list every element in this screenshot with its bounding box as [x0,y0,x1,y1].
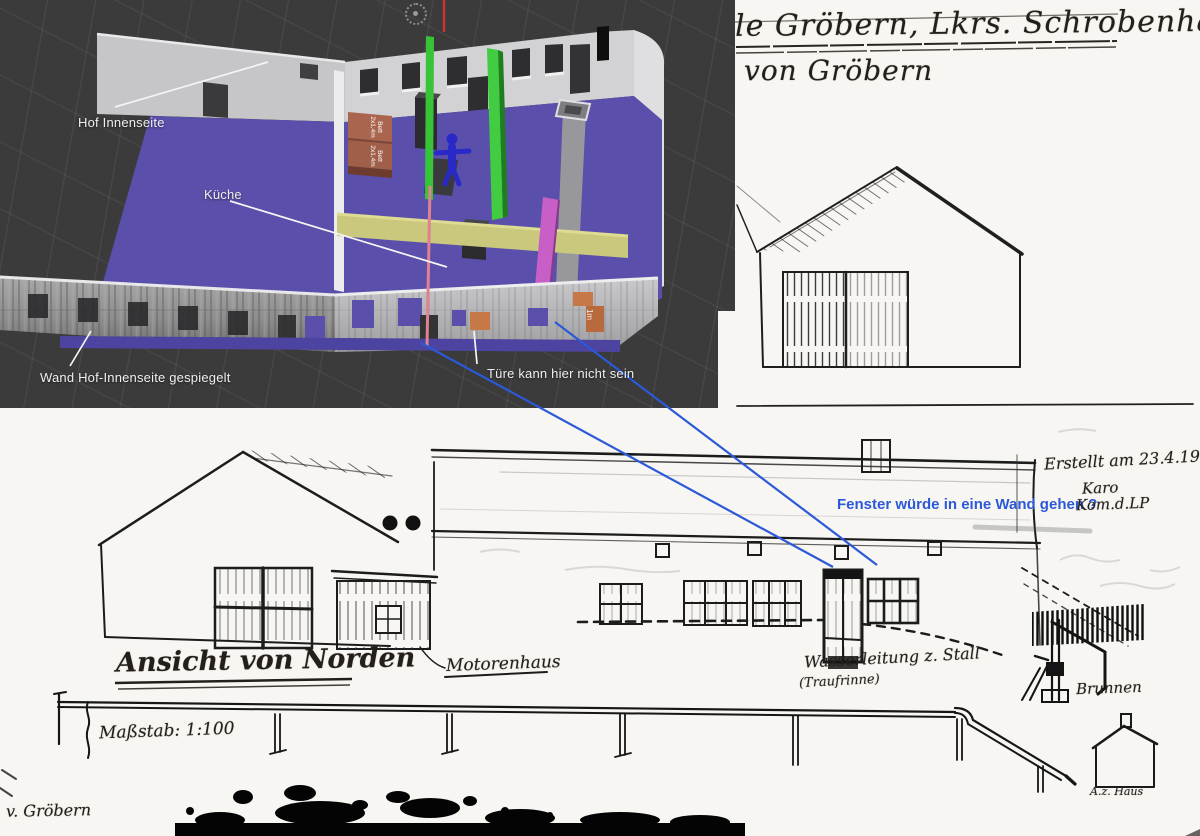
bed-label-2: Bett2x1,4m [357,136,383,176]
3d-viewport-canvas[interactable]: Hof Innenseite Küche Wand Hof-Innenseite… [0,0,735,408]
composite-figure: Hof Innenseite Küche Wand Hof-Innenseite… [0,0,1200,836]
caption-ansicht-von-norden: Ansicht von Norden [116,642,416,678]
caption-motorenhaus: Motorenhaus [446,652,561,676]
label-kueche: Küche [204,187,242,202]
sketch-barn-topright [737,167,1193,406]
caption-signature-2: Kom.d.LP [1076,494,1150,515]
caption-wasserleitung: Wasserleitung z. Stall [804,643,981,671]
caption-brunnen: Brunnen [1076,678,1142,698]
back-wall-hof [97,34,345,122]
caption-erstellt-am: Erstellt am 23.4.1954 [1044,445,1200,473]
water-pipe-fence [0,692,1075,796]
small-house-sketch [1093,714,1157,787]
paper-overlap [718,311,736,409]
label-wand-gespiegelt: Wand Hof-Innenseite gespiegelt [40,370,231,385]
scale-marker-label: 1m [585,309,594,320]
elevation-long-building [432,440,1138,669]
caption-small-house: A.z. Haus [1090,785,1143,798]
label-tuere: Türe kann hier nicht sein [487,366,634,381]
caption-traufrinne: (Traufrinne) [799,672,880,691]
handwriting-underlines [115,679,352,689]
label-hof-innenseite: Hof Innenseite [78,115,165,130]
scan-title-line2: von Gröbern [744,54,933,87]
viewport-gizmo-icon [405,3,427,25]
3d-model-drawing [0,0,735,408]
scan-black-band [175,785,1200,836]
caption-massstab: Maßstab: 1:100 [99,719,235,744]
elevation-left-building [99,450,547,677]
blue-note-fenster: Fenster würde in eine Wand gehen ? [837,496,1097,513]
caption-v-groebern: v. Gröbern [6,800,91,820]
bedroom-wall [334,70,344,292]
scan-title-line1: le Gröbern, Lkrs. Schrobenhausen [735,3,1200,44]
